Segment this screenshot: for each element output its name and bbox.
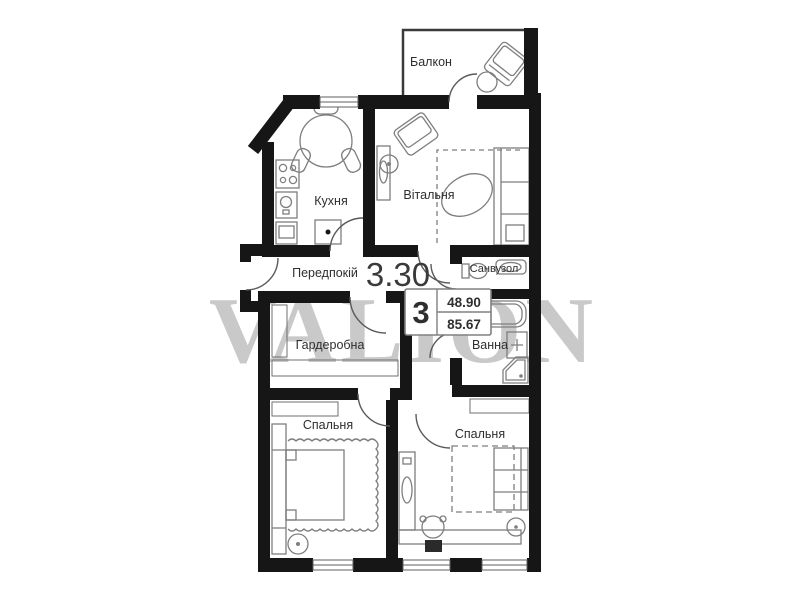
kitchen-column	[315, 220, 341, 244]
floor-plan-page: VALION	[0, 0, 800, 600]
living-shelf	[377, 146, 390, 200]
room-label-bedroom-left: Спальня	[303, 418, 353, 432]
living-armchair	[393, 111, 440, 156]
bedroom-left-bed	[272, 424, 344, 554]
living-floor-lamp	[380, 155, 398, 173]
bedroom-right-wardrobe	[470, 399, 529, 413]
window-nook	[403, 560, 450, 570]
kitchen-cabinet	[276, 222, 297, 244]
room-label-bedroom-right: Спальня	[455, 427, 505, 441]
desk	[399, 530, 521, 544]
window-bedroom-left	[313, 560, 353, 570]
room-label-kitchen: Кухня	[314, 194, 347, 208]
bedroom-right-stool	[507, 518, 525, 536]
room-label-wc: Санвузол	[470, 263, 519, 275]
room-label-wardrobe: Гардеробна	[296, 338, 365, 352]
bedroom-right-rug	[452, 446, 514, 512]
room-label-balcony: Балкон	[410, 55, 452, 69]
floor-plan: VALION	[0, 0, 800, 600]
window-kitchen	[320, 97, 358, 107]
balcony-armchair	[483, 41, 529, 87]
bedroom-left-rug	[288, 439, 378, 531]
bedroom-right-door-arc	[416, 414, 450, 448]
room-label-hallway: Передпокій	[292, 266, 358, 280]
room-label-bathroom: Ванна	[472, 338, 508, 352]
area-stamp: 3 48.90 85.67	[405, 289, 491, 335]
balcony-door-arc	[449, 74, 477, 102]
stamp-area-top: 48.90	[447, 295, 481, 310]
stamp-rooms-count: 3	[412, 295, 429, 330]
bedroom-left-door-arc	[358, 394, 390, 426]
kitchen-sink	[276, 192, 297, 218]
balcony-table	[477, 72, 497, 92]
cheval-mirror	[399, 452, 415, 530]
kitchen-table	[289, 100, 362, 174]
room-label-living-room: Вітальня	[403, 188, 454, 202]
desk-chair	[420, 516, 446, 552]
height-mark: 3.30	[366, 256, 430, 293]
kitchen-stove	[276, 160, 299, 188]
bedroom-right-bed	[494, 448, 528, 510]
bedroom-left-stool	[288, 534, 308, 554]
stamp-area-bottom: 85.67	[447, 317, 481, 332]
window-bedroom-right	[482, 560, 527, 570]
bedroom-left-wardrobe	[272, 402, 338, 416]
living-sofa-unit	[494, 148, 529, 245]
